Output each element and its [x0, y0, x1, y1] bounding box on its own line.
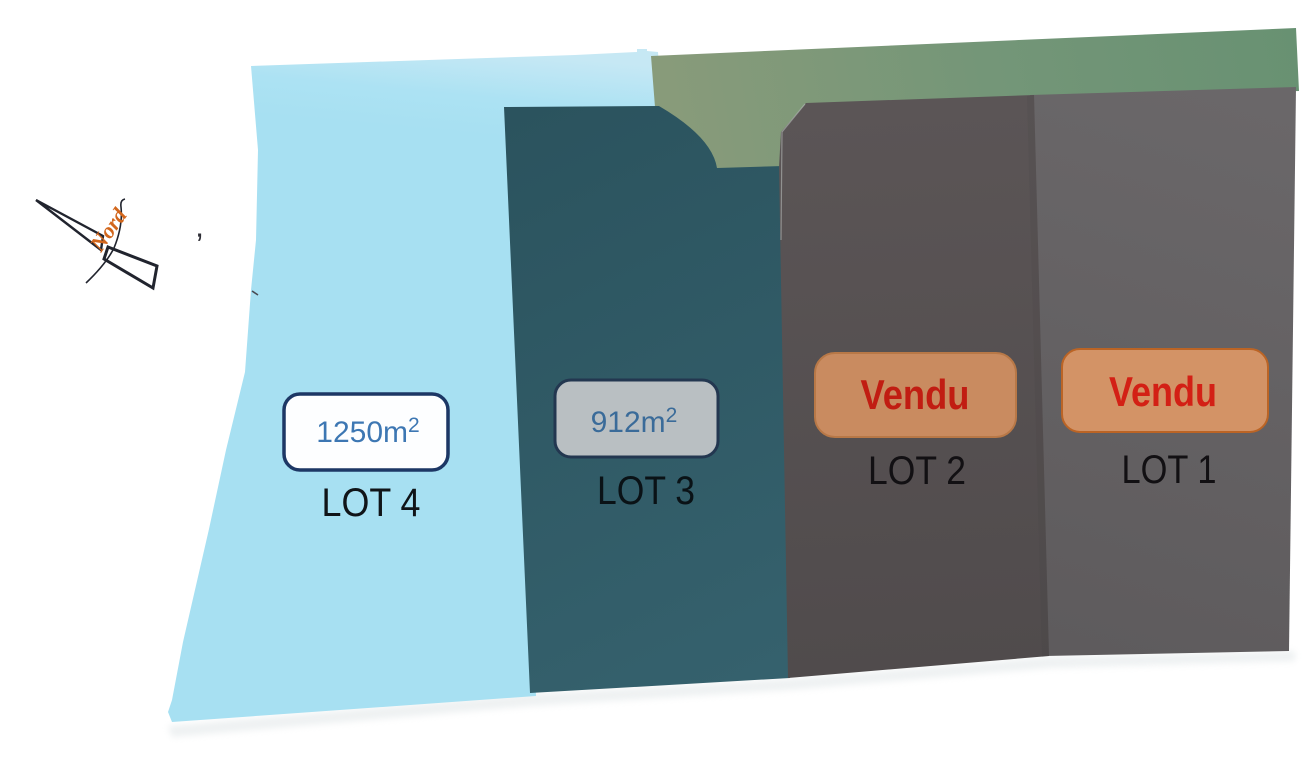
- svg-text:912m2: 912m2: [591, 404, 678, 439]
- svg-text:LOT 3: LOT 3: [597, 469, 695, 513]
- svg-text:Vendu: Vendu: [1109, 368, 1217, 415]
- svg-text:Vendu: Vendu: [861, 371, 970, 418]
- svg-text:’: ’: [196, 227, 203, 263]
- svg-text:LOT 4: LOT 4: [322, 481, 421, 525]
- svg-text:LOT 2: LOT 2: [868, 449, 966, 493]
- svg-text:LOT 1: LOT 1: [1122, 448, 1217, 492]
- svg-text:1250m2: 1250m2: [316, 414, 419, 449]
